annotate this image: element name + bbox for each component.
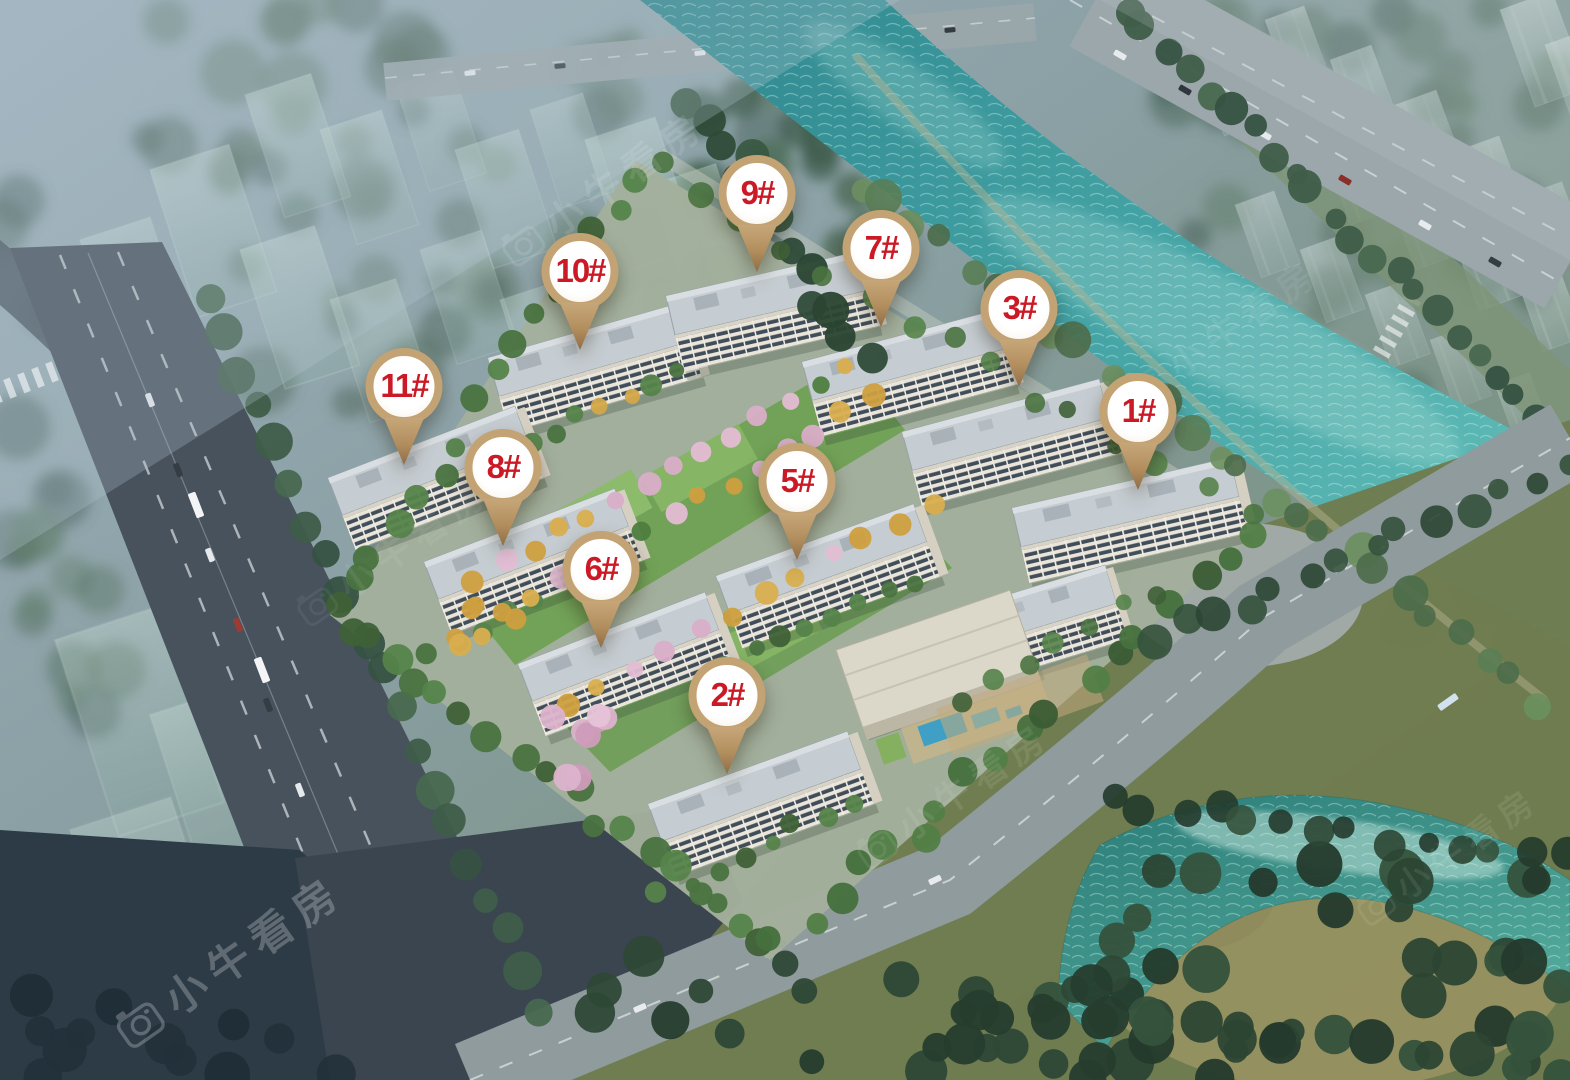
- marker-bubble: 10#: [542, 233, 619, 310]
- marker-label: 11#: [380, 369, 427, 404]
- marker-pointer-icon: [1118, 443, 1158, 490]
- building-marker-7[interactable]: 7#: [843, 210, 920, 327]
- marker-label: 2#: [711, 678, 744, 713]
- marker-label: 7#: [865, 231, 898, 266]
- marker-bubble: 6#: [563, 531, 640, 608]
- marker-label: 10#: [555, 254, 604, 289]
- marker-pointer-icon: [384, 418, 424, 465]
- marker-label: 9#: [741, 176, 774, 211]
- building-marker-8[interactable]: 8#: [465, 429, 542, 546]
- building-marker-5[interactable]: 5#: [759, 443, 836, 560]
- marker-pointer-icon: [737, 225, 777, 272]
- marker-pointer-icon: [999, 340, 1039, 387]
- building-marker-2[interactable]: 2#: [689, 657, 766, 774]
- marker-bubble: 2#: [689, 657, 766, 734]
- marker-label: 6#: [585, 552, 618, 587]
- marker-label: 8#: [487, 450, 520, 485]
- marker-pointer-icon: [777, 513, 817, 560]
- marker-bubble: 5#: [759, 443, 836, 520]
- screenshot-root: 小牛看房 小牛看房 小牛看房: [0, 0, 1570, 1080]
- marker-bubble: 1#: [1100, 373, 1177, 450]
- building-marker-10[interactable]: 10#: [542, 233, 619, 350]
- marker-label: 1#: [1122, 394, 1155, 429]
- marker-bubble: 3#: [981, 270, 1058, 347]
- marker-bubble: 9#: [719, 155, 796, 232]
- building-marker-9[interactable]: 9#: [719, 155, 796, 272]
- marker-pointer-icon: [483, 499, 523, 546]
- marker-pointer-icon: [861, 280, 901, 327]
- marker-bubble: 11#: [366, 348, 443, 425]
- building-marker-11[interactable]: 11#: [366, 348, 443, 465]
- building-marker-1[interactable]: 1#: [1100, 373, 1177, 490]
- marker-pointer-icon: [707, 727, 747, 774]
- building-marker-6[interactable]: 6#: [563, 531, 640, 648]
- marker-bubble: 7#: [843, 210, 920, 287]
- marker-label: 5#: [781, 464, 814, 499]
- building-marker-3[interactable]: 3#: [981, 270, 1058, 387]
- marker-pointer-icon: [560, 303, 600, 350]
- marker-bubble: 8#: [465, 429, 542, 506]
- marker-label: 3#: [1003, 291, 1036, 326]
- marker-pointer-icon: [581, 601, 621, 648]
